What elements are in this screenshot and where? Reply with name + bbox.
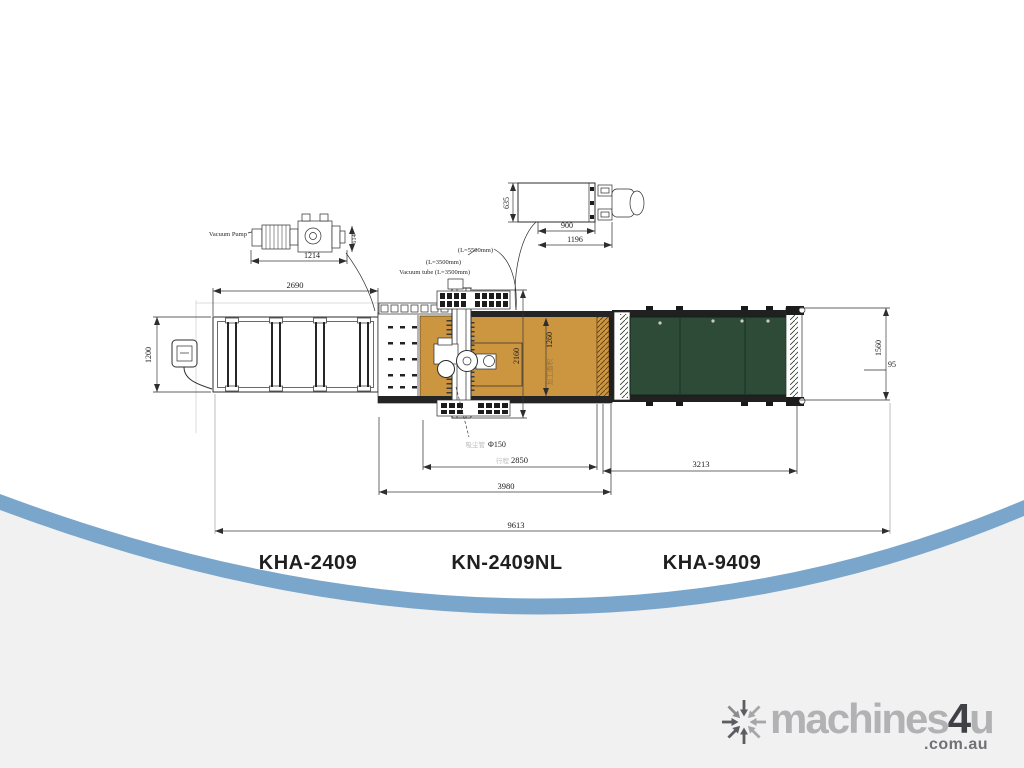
vacuum-pump-drawing: Vacuum Pump 1214 614 — [209, 214, 375, 311]
dim-pump-length-text: 1214 — [304, 251, 320, 260]
dim-panel-depth: 635 — [502, 183, 519, 222]
brand-prefix: machines — [770, 695, 948, 742]
dim-outfeed-width-text: 1560 — [874, 340, 883, 356]
dim-panel-w1-text: 900 — [561, 221, 573, 230]
dim-offset-text: 95 — [888, 360, 896, 369]
dim-machine-width-text: 2160 — [512, 348, 521, 364]
dim-outfeed-length: 3213 — [603, 404, 797, 474]
dim-infeed-width-text: 1200 — [144, 347, 153, 363]
work-area-cn-label: 加工面积 — [545, 359, 554, 386]
model-label-kha-2409: KHA-2409 — [243, 552, 373, 575]
dim-overall-length: 9613 — [215, 394, 890, 534]
dim-work-width-text: 1260 — [545, 332, 554, 348]
dim-panel-depth-text: 635 — [502, 197, 511, 209]
model-label-kha-9409: KHA-9409 — [647, 552, 777, 575]
dim-panel-w1: 900 — [538, 221, 595, 234]
conveyor-belt — [630, 317, 788, 395]
dim-panel-w2: 1196 — [538, 222, 612, 248]
tube-note-1: (L=5500mm) — [458, 247, 493, 254]
operator-console-drawing — [598, 185, 644, 220]
dust-port-note: 吸尘管 Φ150 — [466, 440, 506, 449]
control-box — [172, 340, 212, 389]
machines4u-watermark: machines4u .com.au — [720, 694, 1020, 758]
control-panel-drawing: 635 900 1196 — [502, 183, 644, 248]
dim-machine-length-text: 3980 — [498, 481, 515, 491]
dim-infeed-length: 2690 — [213, 280, 378, 316]
stroke-cn-label: 行程 — [496, 456, 510, 465]
dim-infeed-length-text: 2690 — [287, 280, 304, 290]
dim-pump-width-text: 614 — [351, 233, 358, 244]
vacuum-pump-label: Vacuum Pump — [209, 231, 247, 238]
router-drawing — [378, 279, 614, 437]
dim-overall-length-text: 9613 — [508, 520, 525, 530]
model-label-kn-2409nl: KN-2409NL — [442, 552, 572, 575]
tube-note-2: (L=3500mm) — [426, 259, 461, 266]
tube-note-3: Vacuum tube (L=3500mm) — [399, 269, 470, 276]
dim-pump-width: 614 — [351, 226, 358, 252]
dim-outfeed-length-text: 3213 — [693, 459, 710, 469]
dim-panel-w2-text: 1196 — [567, 235, 583, 244]
brand-suffix: u — [969, 695, 993, 742]
brand-domain: .com.au — [720, 736, 988, 754]
dim-offset: 95 — [864, 360, 896, 370]
brand-four: 4 — [948, 695, 969, 742]
dust-port-cn-label: 吸尘管 — [466, 440, 486, 449]
infeed-table-drawing — [172, 317, 378, 392]
dim-outfeed-width: 1560 — [800, 308, 890, 400]
machine-layout-image: Vacuum Pump 1214 614 — [0, 0, 1024, 768]
technical-drawing: Vacuum Pump 1214 614 — [0, 0, 1024, 768]
dim-x-travel-text: 2850 — [511, 455, 528, 465]
dust-port-label: Φ150 — [488, 440, 506, 449]
outfeed-conveyor-drawing — [612, 306, 805, 406]
